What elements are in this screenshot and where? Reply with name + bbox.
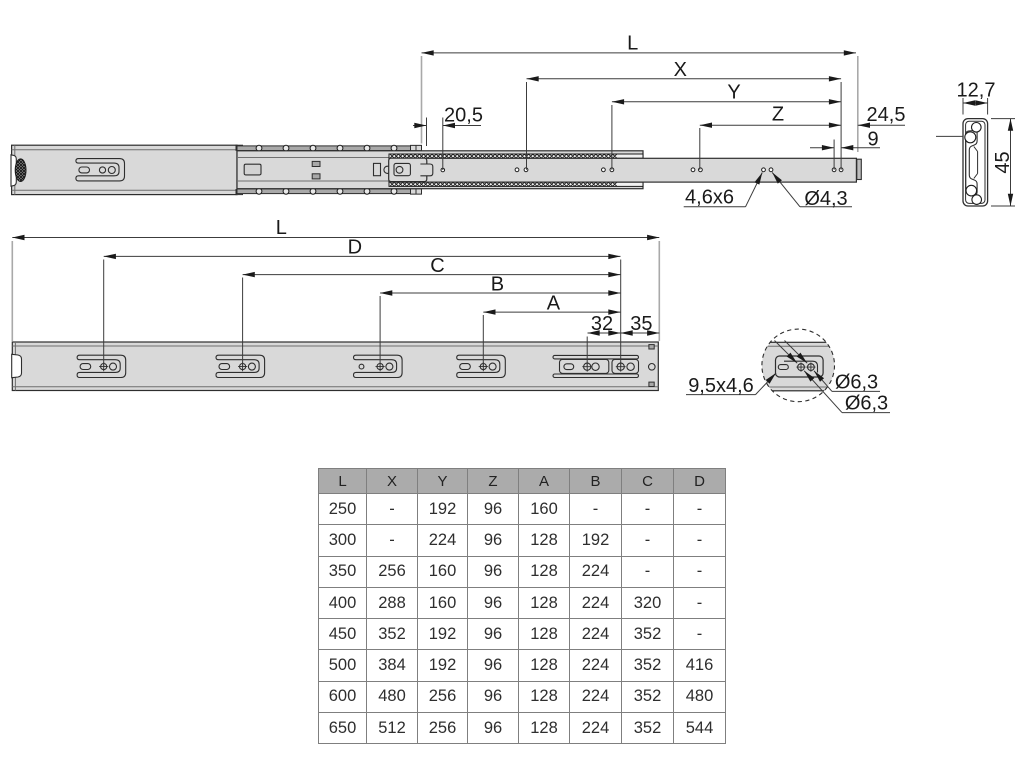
svg-text:4,6x6: 4,6x6	[685, 187, 734, 209]
svg-text:Ø6,3: Ø6,3	[835, 372, 878, 394]
svg-text:12,7: 12,7	[957, 80, 996, 102]
svg-text:24,5: 24,5	[867, 104, 906, 126]
svg-text:Ø4,3: Ø4,3	[804, 188, 847, 210]
svg-text:B: B	[491, 274, 504, 296]
svg-text:35: 35	[630, 313, 652, 335]
svg-text:20,5: 20,5	[444, 105, 483, 127]
svg-text:Ø6,3: Ø6,3	[845, 393, 888, 415]
svg-text:C: C	[430, 255, 444, 277]
svg-text:9,5x4,6: 9,5x4,6	[688, 375, 754, 397]
svg-text:9: 9	[867, 129, 878, 151]
svg-text:45: 45	[992, 151, 1014, 173]
svg-text:32: 32	[591, 313, 613, 335]
svg-text:D: D	[348, 237, 362, 259]
svg-text:X: X	[674, 59, 687, 81]
svg-text:Z: Z	[772, 104, 784, 126]
svg-text:L: L	[627, 33, 638, 55]
svg-text:A: A	[547, 293, 561, 315]
svg-text:Y: Y	[727, 82, 740, 104]
svg-text:L: L	[276, 217, 287, 239]
